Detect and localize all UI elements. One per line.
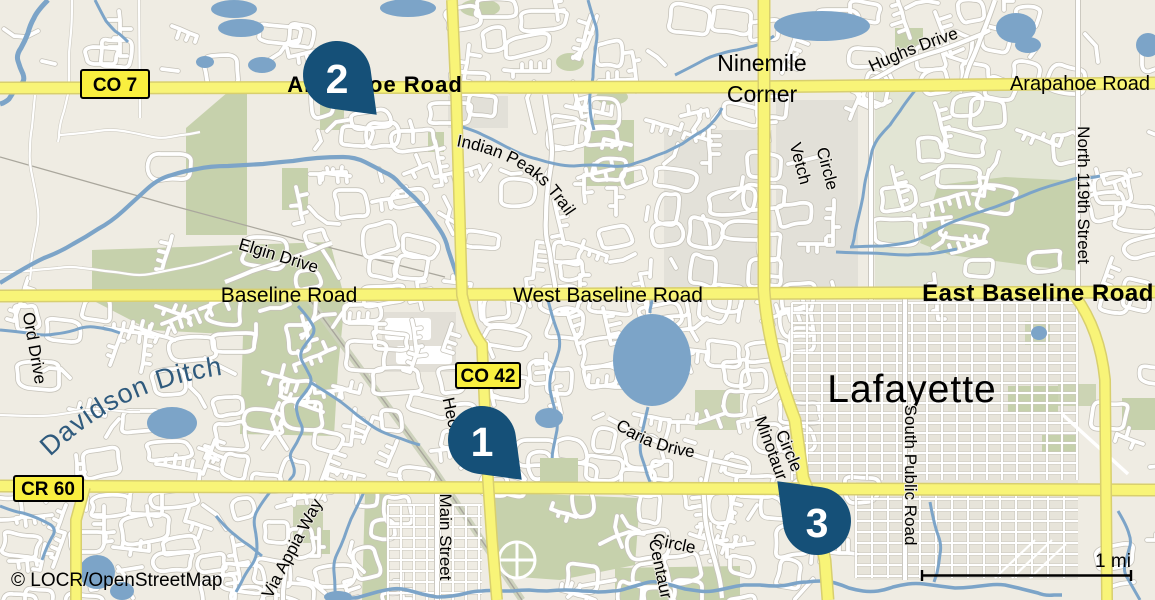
svg-text:3: 3	[806, 500, 829, 546]
svg-text:Baseline Road: Baseline Road	[221, 284, 358, 307]
svg-text:CO 7: CO 7	[93, 75, 137, 96]
svg-text:Corner: Corner	[727, 81, 798, 107]
svg-text:Arapahoe Road: Arapahoe Road	[1010, 73, 1150, 95]
svg-text:East Baseline Road: East Baseline Road	[922, 280, 1154, 307]
svg-text:CR 60: CR 60	[21, 479, 75, 500]
svg-text:Ninemile: Ninemile	[717, 50, 806, 76]
svg-text:2: 2	[326, 56, 349, 102]
svg-text:© LOCR/OpenStreetMap: © LOCR/OpenStreetMap	[11, 570, 222, 591]
svg-text:North 119th Street: North 119th Street	[1074, 126, 1093, 264]
svg-text:CO 42: CO 42	[461, 366, 516, 387]
svg-text:1: 1	[471, 419, 494, 465]
svg-text:West Baseline Road: West Baseline Road	[513, 284, 703, 307]
svg-text:1 mi: 1 mi	[1095, 551, 1131, 572]
svg-text:Main Street: Main Street	[436, 494, 455, 581]
svg-text:South Public Road: South Public Road	[901, 405, 920, 546]
